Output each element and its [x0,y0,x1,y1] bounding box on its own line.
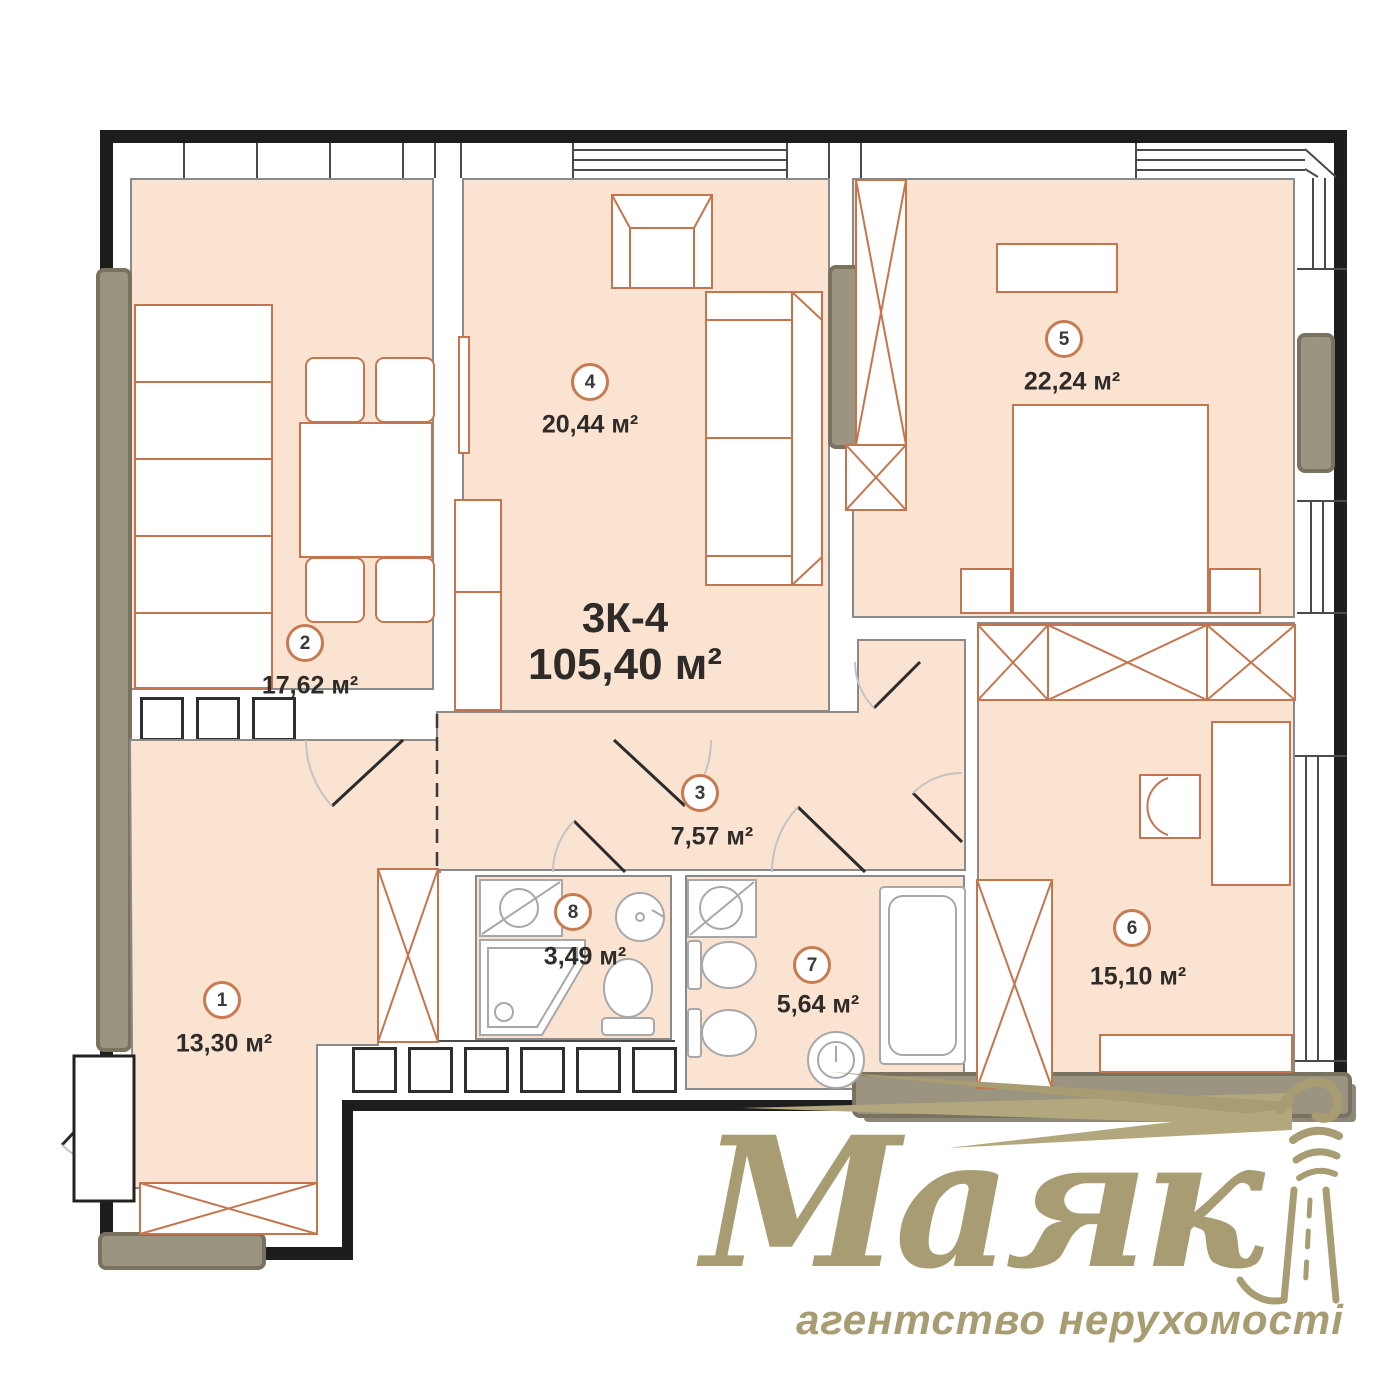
floor-plan-canvas: 1 13,30 м² 2 17,62 м² 3 7,57 м² 4 20,44 … [0,0,1400,1400]
kitchen-pass-window [140,697,184,741]
room-7-area: 5,64 м² [777,991,859,1020]
radiator-left [96,268,132,1052]
corner-window-diagonal [1305,149,1336,177]
room-6-number: 6 [1113,909,1151,947]
room-bedroom-6 [977,622,1295,1090]
logo-brand-text: Маяк [650,1098,1310,1309]
room-1-area: 13,30 м² [176,1030,272,1059]
logo-tagline-text: агентство нерухомості [790,1296,1350,1344]
room-2-area: 17,62 м² [262,672,358,701]
window-glass-line [572,169,786,171]
room-3-area: 7,57 м² [671,823,753,852]
apartment-code: 3К-4 [450,594,800,642]
window-mullion [329,143,331,178]
radiator-mid [828,265,864,449]
window-glass-line [1322,500,1324,612]
window-sill [1295,1060,1347,1062]
room-8-number: 8 [554,893,592,931]
window-glass-line [1312,178,1314,268]
window-sill [1297,268,1347,270]
window-mullion [434,143,436,178]
window-sill [1295,755,1347,757]
window-glass-line [1324,178,1326,268]
room-5-area: 22,24 м² [1024,368,1120,397]
window-glass-line [572,149,786,151]
apartment-total-area: 105,40 м² [450,640,800,690]
room-4-area: 20,44 м² [542,411,638,440]
room-8-area: 3,49 м² [544,943,626,972]
wall-right [1334,130,1347,1078]
window-glass-line [1305,755,1307,1060]
window-glass-line [1310,500,1312,612]
room-5-number: 5 [1045,320,1083,358]
window-mullion [572,143,574,178]
room-2-number: 2 [286,624,324,662]
wall-top [100,130,1347,143]
window-mullion [183,143,185,178]
window-glass-line [1135,169,1305,171]
room-6-area: 15,10 м² [1090,963,1186,992]
lower-window [632,1047,677,1093]
kitchen-pass-window [252,697,296,741]
lower-window [352,1047,397,1093]
window-mullion [786,143,788,178]
window-mullion [256,143,258,178]
window-mullion [460,143,462,178]
window-glass-line [572,159,786,161]
room-1-number: 1 [203,981,241,1019]
room-7-number: 7 [793,946,831,984]
window-mullion [860,143,862,178]
room-wc-7 [685,875,965,1090]
window-mullion [828,143,830,178]
lower-window [408,1047,453,1093]
balcony-rail-bottom-left [98,1232,266,1270]
window-glass-line [1135,149,1305,151]
window-glass-line [1317,755,1319,1060]
room-3-number: 3 [681,774,719,812]
window-sill [1297,612,1347,614]
band-edge [352,1040,675,1042]
lower-window [576,1047,621,1093]
radiator-right [1297,333,1335,473]
kitchen-pass-window [196,697,240,741]
room-4-number: 4 [571,363,609,401]
room-kitchen [130,178,434,690]
window-mullion [1135,143,1137,178]
window-glass-line [1135,159,1305,161]
lower-window [520,1047,565,1093]
lower-window [464,1047,509,1093]
room-bedroom-5 [852,178,1295,618]
wall-step-vertical [342,1100,353,1260]
window-mullion [402,143,404,178]
